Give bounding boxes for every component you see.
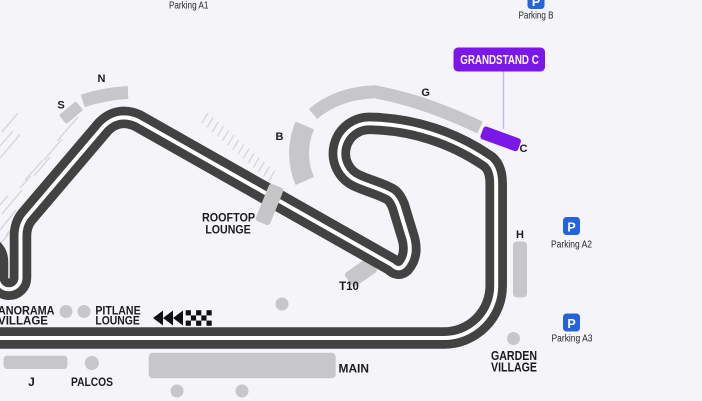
svg-text:Parking B: Parking B bbox=[519, 11, 554, 22]
svg-text:LOUNGE: LOUNGE bbox=[95, 314, 139, 328]
svg-text:GRANDSTAND C: GRANDSTAND C bbox=[460, 52, 539, 67]
svg-text:P: P bbox=[567, 317, 575, 331]
svg-text:C: C bbox=[520, 143, 528, 155]
svg-text:Parking A1: Parking A1 bbox=[169, 1, 209, 12]
svg-text:N: N bbox=[98, 73, 106, 85]
svg-text:G: G bbox=[421, 87, 430, 99]
svg-text:Parking A2: Parking A2 bbox=[551, 240, 592, 251]
svg-text:VILLAGE: VILLAGE bbox=[0, 314, 48, 328]
svg-text:S: S bbox=[57, 99, 64, 111]
svg-text:B: B bbox=[276, 131, 284, 143]
svg-text:T10: T10 bbox=[339, 281, 359, 293]
svg-text:LOUNGE: LOUNGE bbox=[205, 223, 250, 237]
svg-text:P: P bbox=[567, 220, 575, 234]
svg-text:MAIN: MAIN bbox=[339, 362, 370, 376]
svg-text:P: P bbox=[532, 0, 540, 9]
svg-text:Parking A3: Parking A3 bbox=[552, 334, 593, 345]
svg-text:H: H bbox=[516, 229, 524, 241]
svg-text:J: J bbox=[28, 375, 35, 389]
svg-text:VILLAGE: VILLAGE bbox=[491, 361, 537, 375]
svg-text:PALCOS: PALCOS bbox=[71, 375, 113, 389]
